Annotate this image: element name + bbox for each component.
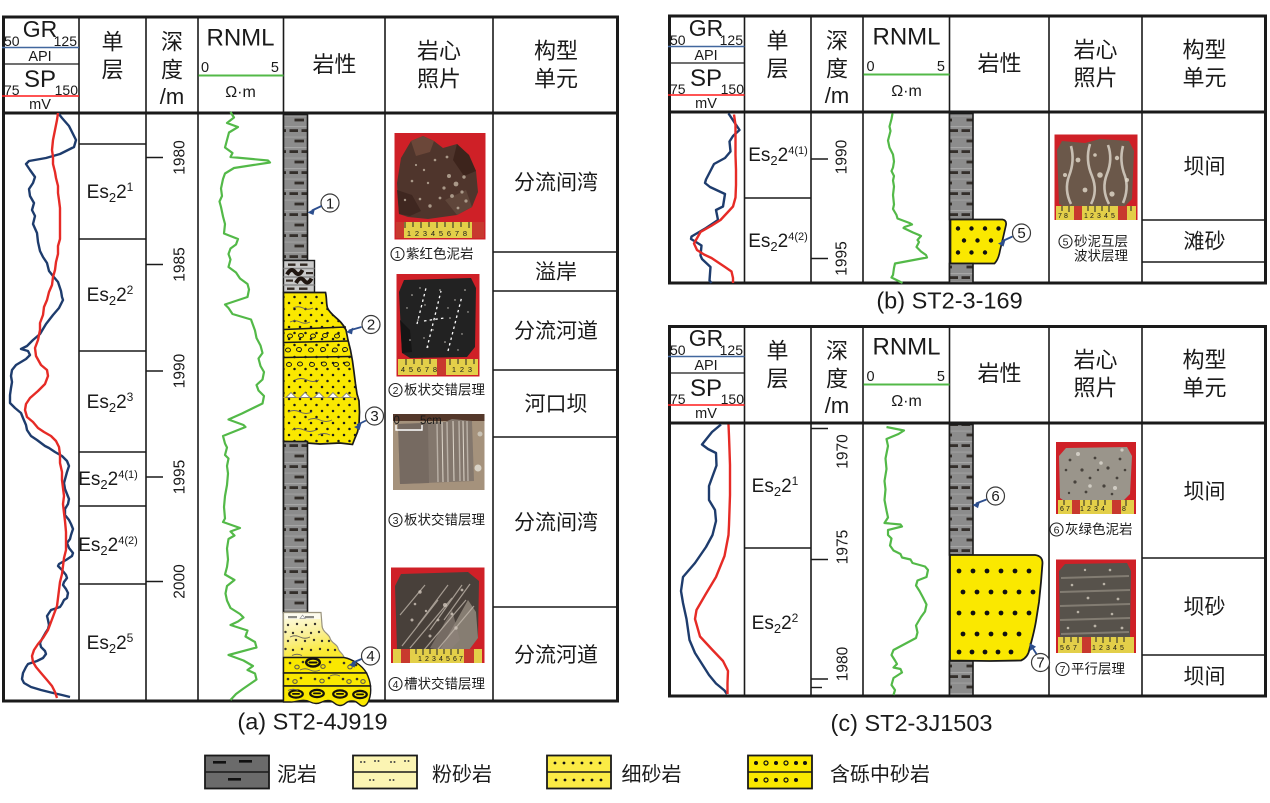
svg-text:GR: GR — [689, 325, 724, 351]
svg-text:SP: SP — [690, 65, 722, 92]
svg-text:Es224(2): Es224(2) — [748, 231, 808, 254]
svg-text:2: 2 — [1090, 213, 1094, 220]
svg-text:Es222: Es222 — [87, 283, 134, 308]
svg-text:6: 6 — [447, 229, 451, 238]
svg-text:层: 层 — [101, 58, 123, 83]
svg-text:4: 4 — [366, 648, 374, 665]
svg-text:4: 4 — [439, 656, 443, 663]
svg-text:岩心: 岩心 — [1073, 348, 1117, 373]
svg-text:1975: 1975 — [835, 530, 852, 564]
svg-text:砂泥互层: 砂泥互层 — [1074, 234, 1128, 249]
svg-text:5: 5 — [446, 656, 450, 663]
svg-text:分流河道: 分流河道 — [514, 320, 598, 343]
svg-text:Ω·m: Ω·m — [891, 83, 922, 100]
svg-text:6: 6 — [1066, 645, 1070, 652]
svg-text:细砂岩: 细砂岩 — [622, 763, 682, 786]
svg-text:深: 深 — [826, 339, 848, 364]
svg-text:SP: SP — [24, 66, 56, 93]
svg-text:4: 4 — [1104, 213, 1108, 220]
svg-text:(b) ST2-3-169: (b) ST2-3-169 — [876, 288, 1022, 314]
svg-text:照片: 照片 — [417, 67, 461, 92]
svg-text:单元: 单元 — [534, 67, 578, 92]
svg-text:50: 50 — [670, 32, 686, 48]
svg-text:构型: 构型 — [1182, 348, 1226, 373]
svg-text:6: 6 — [1054, 525, 1060, 537]
svg-text:8: 8 — [433, 365, 437, 374]
svg-text:4: 4 — [401, 365, 405, 374]
svg-text:Es224(1): Es224(1) — [748, 145, 808, 168]
svg-text:分流河道: 分流河道 — [514, 644, 598, 667]
svg-text:4: 4 — [431, 229, 435, 238]
svg-text:泥岩: 泥岩 — [277, 763, 317, 786]
svg-text:1: 1 — [326, 196, 334, 213]
svg-text:(a) ST2-4J919: (a) ST2-4J919 — [237, 709, 387, 735]
svg-text:5: 5 — [937, 59, 945, 75]
svg-text:紫红色泥岩: 紫红色泥岩 — [406, 246, 474, 262]
svg-text:深: 深 — [161, 30, 183, 55]
svg-text:3: 3 — [370, 408, 378, 425]
svg-text:7: 7 — [425, 365, 429, 374]
svg-text:8: 8 — [463, 229, 467, 238]
svg-text:1995: 1995 — [834, 241, 851, 275]
svg-text:照片: 照片 — [1073, 376, 1117, 401]
svg-text:5: 5 — [1111, 213, 1115, 220]
svg-text:8: 8 — [1064, 213, 1068, 220]
svg-text:5: 5 — [409, 365, 413, 374]
svg-text:Es225: Es225 — [87, 631, 134, 656]
svg-text:API: API — [694, 358, 717, 374]
svg-text:3: 3 — [1097, 213, 1101, 220]
svg-text:7: 7 — [1036, 655, 1044, 672]
svg-text:/m: /m — [825, 393, 849, 418]
svg-text:0: 0 — [867, 59, 875, 75]
svg-text:3: 3 — [423, 229, 427, 238]
svg-text:构型: 构型 — [534, 39, 578, 64]
svg-text:GR: GR — [23, 16, 58, 42]
svg-text:Es224(1): Es224(1) — [78, 469, 138, 492]
svg-text:度: 度 — [161, 58, 183, 83]
svg-text:1970: 1970 — [835, 434, 852, 469]
svg-text:滩砂: 滩砂 — [1184, 231, 1226, 254]
svg-text:0: 0 — [201, 60, 209, 76]
svg-text:单: 单 — [766, 339, 788, 364]
svg-text:波状层理: 波状层理 — [1074, 249, 1128, 264]
svg-text:单: 单 — [766, 29, 788, 54]
svg-text:8: 8 — [1122, 506, 1126, 513]
svg-text:含砾中砂岩: 含砾中砂岩 — [830, 763, 930, 786]
svg-text:1980: 1980 — [172, 140, 189, 175]
svg-text:5: 5 — [1060, 645, 1064, 652]
svg-text:单元: 单元 — [1182, 376, 1226, 401]
svg-text:灰绿色泥岩: 灰绿色泥岩 — [1065, 521, 1133, 537]
svg-text:5: 5 — [1017, 225, 1025, 242]
svg-text:2: 2 — [1087, 506, 1091, 513]
svg-text:分流间湾: 分流间湾 — [514, 512, 598, 535]
svg-text:层: 层 — [766, 57, 788, 82]
svg-text:岩心: 岩心 — [1073, 38, 1117, 63]
svg-text:坝间: 坝间 — [1184, 481, 1226, 504]
svg-text:槽状交错层理: 槽状交错层理 — [404, 676, 485, 692]
svg-text:5: 5 — [1120, 645, 1124, 652]
svg-text:/m: /m — [160, 84, 184, 109]
svg-text:2: 2 — [415, 229, 419, 238]
svg-text:1990: 1990 — [834, 139, 851, 174]
svg-text:50: 50 — [4, 33, 20, 49]
svg-text:6: 6 — [991, 488, 999, 505]
svg-text:0: 0 — [867, 369, 875, 385]
svg-text:1: 1 — [407, 229, 411, 238]
svg-text:岩性: 岩性 — [312, 52, 356, 77]
svg-text:API: API — [28, 49, 51, 65]
svg-text:SP: SP — [690, 375, 722, 402]
svg-text:5: 5 — [439, 229, 443, 238]
svg-text:RNML: RNML — [872, 24, 940, 51]
svg-text:度: 度 — [826, 367, 848, 392]
svg-text:岩心: 岩心 — [417, 39, 461, 64]
svg-text:3: 3 — [1106, 645, 1110, 652]
svg-text:2: 2 — [460, 365, 464, 374]
svg-text:2: 2 — [1099, 645, 1103, 652]
svg-text:2000: 2000 — [172, 564, 189, 599]
svg-text:125: 125 — [54, 33, 78, 49]
svg-text:1980: 1980 — [835, 646, 852, 681]
svg-text:Es223: Es223 — [87, 390, 134, 415]
svg-text:125: 125 — [720, 32, 744, 48]
svg-text:6: 6 — [1060, 506, 1064, 513]
svg-text:Es221: Es221 — [752, 474, 799, 499]
svg-text:分流间湾: 分流间湾 — [514, 172, 598, 195]
svg-text:1: 1 — [452, 365, 456, 374]
svg-text:6: 6 — [417, 365, 421, 374]
svg-text:4: 4 — [393, 679, 399, 691]
svg-text:照片: 照片 — [1073, 66, 1117, 91]
svg-text:度: 度 — [826, 57, 848, 82]
svg-text:GR: GR — [689, 15, 724, 41]
svg-text:/m: /m — [825, 83, 849, 108]
svg-text:0: 0 — [394, 415, 400, 427]
svg-text:深: 深 — [826, 29, 848, 54]
svg-text:50: 50 — [670, 342, 686, 358]
svg-text:板状交错层理: 板状交错层理 — [404, 512, 485, 528]
svg-text:5: 5 — [937, 369, 945, 385]
svg-text:mV: mV — [695, 406, 717, 422]
svg-text:3: 3 — [468, 365, 472, 374]
svg-text:7: 7 — [455, 229, 459, 238]
svg-text:3: 3 — [1094, 506, 1098, 513]
svg-text:Ω·m: Ω·m — [891, 393, 922, 410]
svg-text:1: 1 — [1092, 645, 1096, 652]
svg-text:粉砂岩: 粉砂岩 — [432, 763, 492, 786]
svg-text:层: 层 — [766, 367, 788, 392]
svg-text:Es224(2): Es224(2) — [78, 535, 138, 558]
svg-text:2: 2 — [393, 385, 399, 397]
svg-text:(c) ST2-3J1503: (c) ST2-3J1503 — [831, 710, 993, 736]
svg-text:岩性: 岩性 — [977, 361, 1021, 386]
svg-text:4: 4 — [1101, 506, 1105, 513]
svg-text:构型: 构型 — [1182, 38, 1226, 63]
svg-text:4: 4 — [1113, 645, 1117, 652]
svg-text:平行层理: 平行层理 — [1071, 662, 1125, 677]
svg-text:7: 7 — [1060, 664, 1066, 676]
svg-text:7: 7 — [1058, 213, 1062, 220]
svg-text:3: 3 — [432, 656, 436, 663]
svg-text:坝间: 坝间 — [1184, 156, 1226, 179]
svg-text:mV: mV — [695, 96, 717, 112]
svg-text:Es221: Es221 — [87, 180, 134, 205]
svg-text:岩性: 岩性 — [977, 51, 1021, 76]
svg-text:7: 7 — [1066, 506, 1070, 513]
svg-text:1: 1 — [418, 656, 422, 663]
svg-text:125: 125 — [720, 342, 744, 358]
svg-text:5: 5 — [1063, 237, 1069, 249]
svg-text:7: 7 — [459, 656, 463, 663]
svg-text:1: 1 — [1080, 506, 1084, 513]
svg-text:单元: 单元 — [1182, 66, 1226, 91]
svg-text:API: API — [694, 48, 717, 64]
svg-text:1995: 1995 — [172, 460, 189, 494]
svg-text:1985: 1985 — [172, 247, 189, 281]
svg-text:溢岸: 溢岸 — [535, 261, 577, 284]
svg-text:3: 3 — [393, 515, 399, 527]
svg-text:6: 6 — [453, 656, 457, 663]
svg-text:1: 1 — [1084, 213, 1088, 220]
svg-text:Es222: Es222 — [752, 611, 799, 636]
svg-text:RNML: RNML — [206, 25, 274, 52]
svg-text:1: 1 — [395, 249, 401, 261]
svg-text:RNML: RNML — [872, 334, 940, 361]
svg-text:5cm: 5cm — [420, 415, 442, 427]
svg-text:板状交错层理: 板状交错层理 — [404, 382, 485, 398]
svg-text:2: 2 — [367, 317, 375, 334]
svg-text:mV: mV — [29, 97, 51, 113]
svg-text:坝间: 坝间 — [1184, 666, 1226, 689]
svg-text:坝砂: 坝砂 — [1184, 596, 1226, 619]
svg-text:1990: 1990 — [172, 353, 189, 388]
svg-text:单: 单 — [101, 30, 123, 55]
svg-text:河口坝: 河口坝 — [525, 393, 588, 416]
svg-text:7: 7 — [1073, 645, 1077, 652]
svg-text:2: 2 — [425, 656, 429, 663]
svg-text:Ω·m: Ω·m — [225, 84, 256, 101]
svg-text:5: 5 — [271, 60, 279, 76]
